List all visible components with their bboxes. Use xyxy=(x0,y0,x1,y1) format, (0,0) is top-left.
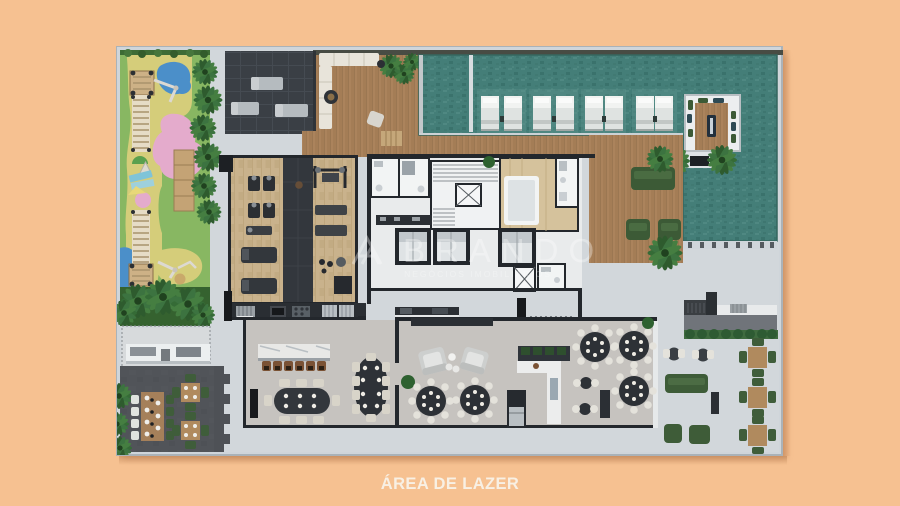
svg-text:ÁREA DE LAZER: ÁREA DE LAZER xyxy=(381,474,519,493)
svg-text:BRANDO: BRANDO xyxy=(403,232,604,269)
svg-text:NEGÓCIOS IMOBILIÁRIOS: NEGÓCIOS IMOBILIÁRIOS xyxy=(404,269,552,279)
